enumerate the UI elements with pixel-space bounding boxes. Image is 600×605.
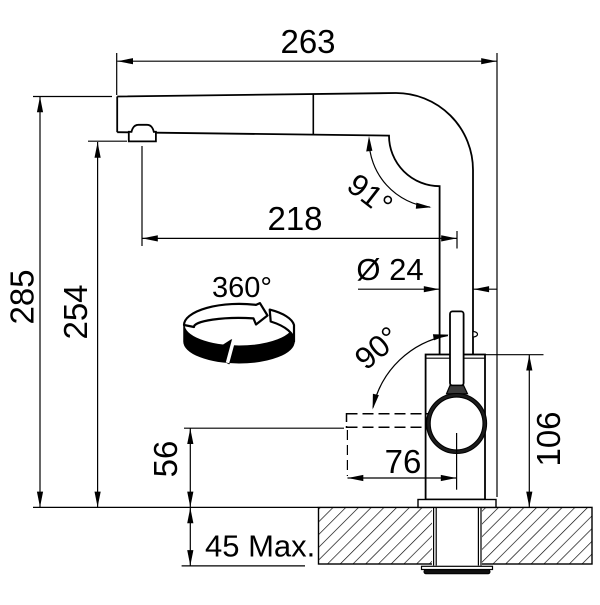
svg-text:Ø 24: Ø 24 bbox=[356, 252, 423, 287]
svg-text:285: 285 bbox=[4, 269, 41, 324]
svg-text:218: 218 bbox=[267, 200, 322, 237]
svg-text:76: 76 bbox=[385, 443, 422, 480]
svg-text:254: 254 bbox=[57, 284, 94, 339]
svg-text:106: 106 bbox=[530, 411, 567, 466]
svg-text:263: 263 bbox=[280, 23, 335, 60]
svg-text:360°: 360° bbox=[212, 272, 272, 304]
svg-text:45 Max.: 45 Max. bbox=[205, 529, 315, 564]
svg-text:56: 56 bbox=[147, 441, 184, 478]
